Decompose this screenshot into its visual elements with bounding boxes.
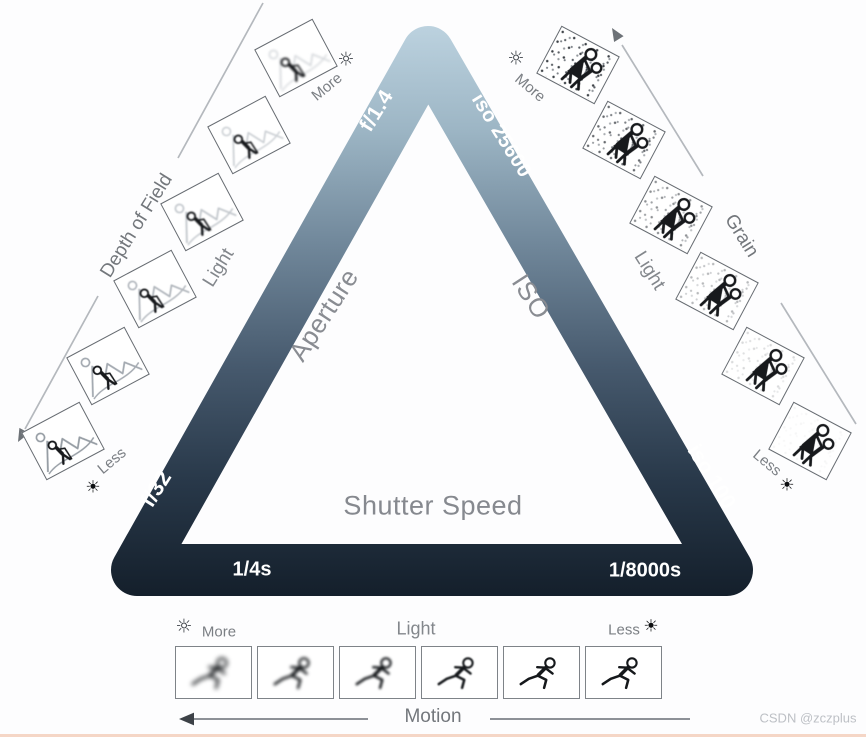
light-label-bottom: Light (396, 619, 435, 640)
exposure-triangle-diagram: Depth of Field Light More ☼ Less ☀ f/1.4… (0, 0, 866, 737)
running-figure-icon (185, 655, 243, 691)
grain-axis-arrowhead (612, 28, 624, 42)
motion-thumbnail (257, 646, 334, 699)
running-figure-icon (595, 655, 653, 691)
running-figure-icon (513, 655, 571, 691)
running-figure-icon (431, 655, 489, 691)
more-label-bottom: More (202, 624, 236, 641)
sun-dark-icon: ☀ (779, 478, 794, 495)
motion-thumbnail (175, 646, 252, 699)
sun-dark-icon: ☀ (85, 480, 100, 497)
watermark: CSDN @zczplus (760, 711, 857, 726)
shutter-fast-value: 1/8000s (609, 560, 681, 583)
sun-bright-icon: ☼ (175, 618, 192, 637)
shutter-side-label: Shutter Speed (343, 491, 522, 522)
motion-thumbnail (503, 646, 580, 699)
motion-thumbnail (421, 646, 498, 699)
shutter-slow-value: 1/4s (233, 559, 272, 582)
motion-thumbnail (585, 646, 662, 699)
running-figure-icon (349, 655, 407, 691)
motion-axis-arrowhead (179, 713, 194, 726)
sun-bright-icon: ☼ (507, 50, 524, 69)
sun-dark-icon: ☀ (643, 619, 658, 636)
motion-thumbnail (339, 646, 416, 699)
less-label-bottom: Less (608, 622, 640, 639)
sun-bright-icon: ☼ (337, 51, 354, 70)
running-figure-icon (267, 655, 325, 691)
motion-axis-label: Motion (404, 706, 461, 728)
